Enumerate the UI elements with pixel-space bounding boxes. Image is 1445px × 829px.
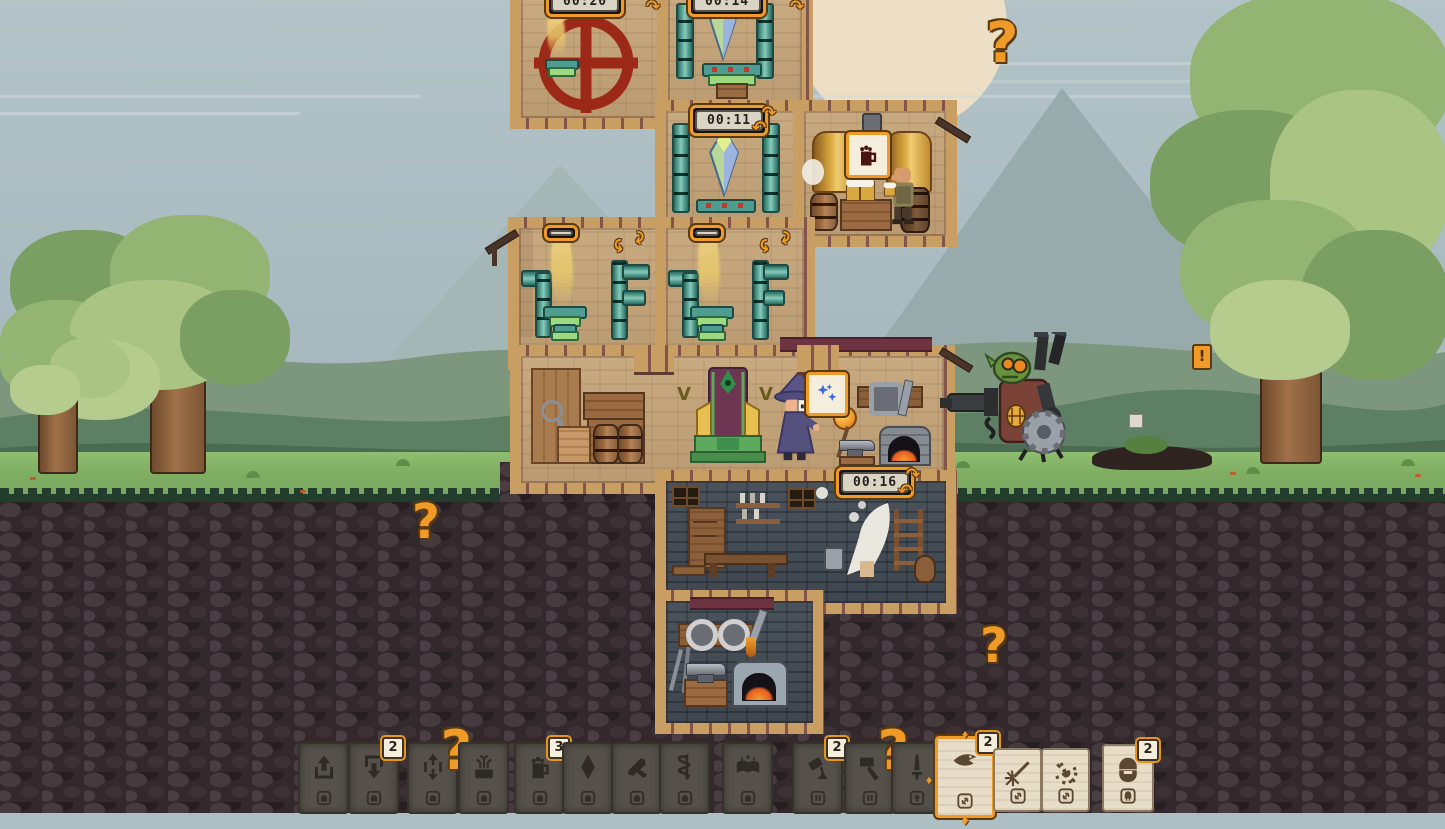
- card-slot-icon: [675, 788, 695, 808]
- card-slot-icon: [1008, 786, 1028, 806]
- card-slot-icon: [1118, 786, 1138, 806]
- card-icon: [733, 752, 763, 782]
- card-slot-icon: [530, 788, 550, 808]
- card-slot-icon: [907, 788, 927, 808]
- card-slot-icon: [1056, 786, 1076, 806]
- action-card-arrow-updown[interactable]: ?: [407, 742, 458, 814]
- smithy-furnace: [732, 661, 788, 707]
- furnace: [879, 426, 931, 466]
- pipe: [535, 272, 552, 338]
- bottle: [740, 493, 745, 503]
- card-slot-icon: [474, 788, 494, 808]
- tool-poker: [669, 649, 683, 691]
- card-icon: [950, 747, 980, 777]
- action-card-arrow-down[interactable]: 2: [348, 742, 399, 814]
- tree-left-small: [0, 330, 140, 470]
- ghost-figure[interactable]: [838, 499, 898, 583]
- cellar-window: [672, 486, 700, 507]
- action-card-dwarf-head[interactable]: 2: [1102, 744, 1154, 812]
- cellar-window: [788, 488, 816, 509]
- card-slot-icon: [578, 788, 598, 808]
- question-mark[interactable]: ?: [412, 498, 440, 546]
- grass-tuft: [395, 458, 411, 466]
- maroon-band-small: [690, 597, 774, 610]
- anvil-block: [839, 456, 875, 466]
- room-wheel[interactable]: [510, 0, 679, 129]
- card-icon: [670, 752, 700, 782]
- card-icon: [469, 752, 499, 782]
- room-smithy[interactable]: [655, 590, 824, 734]
- card-slot-icon: [423, 788, 443, 808]
- action-card-pour-bucket[interactable]: 2: [792, 742, 843, 814]
- card-slot-icon: [627, 788, 647, 808]
- bench-leg: [710, 563, 717, 577]
- shelf: [736, 519, 780, 524]
- swap-arrow-icon[interactable]: ↶: [752, 118, 766, 138]
- ground-speck: [1415, 474, 1421, 477]
- crystal: [708, 129, 740, 197]
- highlight-decor-icon: ♦: [961, 812, 969, 829]
- bench-leg: [768, 563, 775, 577]
- mound-bush: [1124, 436, 1168, 454]
- ceiling-stub: [634, 345, 674, 375]
- card-icon: [622, 752, 652, 782]
- pipe-arm: [763, 290, 785, 306]
- card-icon: [573, 752, 603, 782]
- action-card-burst[interactable]: [1041, 748, 1090, 812]
- pedestal-top: [696, 199, 756, 213]
- timer-crystal-top: 00:14: [688, 0, 766, 17]
- question-mark[interactable]: ?: [980, 622, 1008, 670]
- ceiling-stub: [797, 345, 839, 375]
- pipe: [682, 272, 699, 338]
- action-card-beer-mug[interactable]: 3: [514, 742, 565, 814]
- horn-prop: [746, 637, 756, 657]
- swap-arrow-icon[interactable]: ↷: [646, 0, 660, 17]
- barrel: [617, 424, 643, 464]
- tree-right: [1150, 0, 1445, 470]
- ring-emblem: [686, 619, 718, 651]
- card-slot-icon: [955, 791, 975, 811]
- action-card-snake-staff[interactable]: [659, 742, 710, 814]
- timer-vent-left: [544, 225, 578, 241]
- ladder-rung: [894, 519, 923, 523]
- card-slot-icon: [364, 788, 384, 808]
- highlight-decor-icon: ♦: [962, 727, 968, 741]
- crate: [583, 392, 645, 420]
- pipe-arm: [622, 264, 650, 280]
- swap-arrow-icon[interactable]: ↷: [790, 0, 804, 17]
- beam-support: [492, 248, 497, 266]
- action-card-eagle[interactable]: 2 ♦♦♦: [935, 736, 995, 818]
- anvil-base: [697, 674, 714, 683]
- white-smoke: [802, 159, 824, 185]
- anvil-sign[interactable]: [806, 372, 848, 416]
- card-slot-icon: [314, 788, 334, 808]
- card-slot-icon: [860, 788, 880, 808]
- ground-speck: [300, 490, 306, 493]
- card-icon: [1051, 758, 1081, 788]
- bottle: [742, 509, 747, 519]
- ground-speck: [1230, 472, 1236, 475]
- alert-badge[interactable]: !: [1192, 344, 1212, 370]
- dropped-item[interactable]: [1129, 414, 1143, 428]
- action-card-plant-crate[interactable]: [458, 742, 509, 814]
- pipe: [672, 123, 690, 213]
- crate-light: [557, 426, 591, 464]
- swap-arrow-icon[interactable]: ↶: [898, 481, 912, 501]
- card-slot-icon: [738, 788, 758, 808]
- bottle: [750, 493, 755, 503]
- highlight-decor-icon: ♦: [926, 773, 932, 787]
- brewery-sign[interactable]: [846, 132, 890, 178]
- bottle: [754, 509, 759, 519]
- action-card-crossbow[interactable]: [611, 742, 662, 814]
- vent-base: [551, 331, 579, 341]
- card-count-badge: 2: [1137, 739, 1159, 761]
- card-icon: [1003, 758, 1033, 788]
- green-machine-band: [548, 67, 576, 77]
- card-slot-icon: [808, 788, 828, 808]
- pennant-v: V: [677, 384, 691, 405]
- bottle: [760, 493, 765, 503]
- jug: [914, 555, 936, 583]
- vent-base: [698, 331, 726, 341]
- plank-prop: [672, 565, 706, 576]
- card-count-badge: 2: [382, 737, 404, 759]
- action-card-magic-book[interactable]: [722, 742, 773, 814]
- anvil-crate: [684, 679, 728, 707]
- pipe-arm: [622, 290, 646, 306]
- beer-foam: [846, 179, 874, 187]
- ground-speck: [30, 477, 36, 480]
- action-card-arrow-up[interactable]: [298, 742, 349, 814]
- action-card-hammer[interactable]: ?: [844, 742, 895, 814]
- question-mark[interactable]: ?: [986, 16, 1018, 72]
- timer-wheel-room: 00:20: [546, 0, 624, 17]
- barrel: [593, 424, 619, 464]
- shelf: [736, 503, 780, 508]
- card-icon: [309, 752, 339, 782]
- goblin-machine[interactable]: [940, 332, 1100, 464]
- pipe-arm: [763, 264, 789, 280]
- action-card-gem[interactable]: [562, 742, 613, 814]
- ladder-rung: [894, 547, 923, 551]
- ladder-rung: [894, 533, 923, 537]
- throne: [689, 364, 767, 466]
- beer-mug-prop: [846, 185, 860, 201]
- timer-vent-right: [690, 225, 724, 241]
- action-card-sword-spark[interactable]: [993, 748, 1042, 812]
- grass-tuft: [245, 470, 261, 478]
- pedestal-chimney: [716, 83, 748, 99]
- white-puff: [816, 487, 828, 499]
